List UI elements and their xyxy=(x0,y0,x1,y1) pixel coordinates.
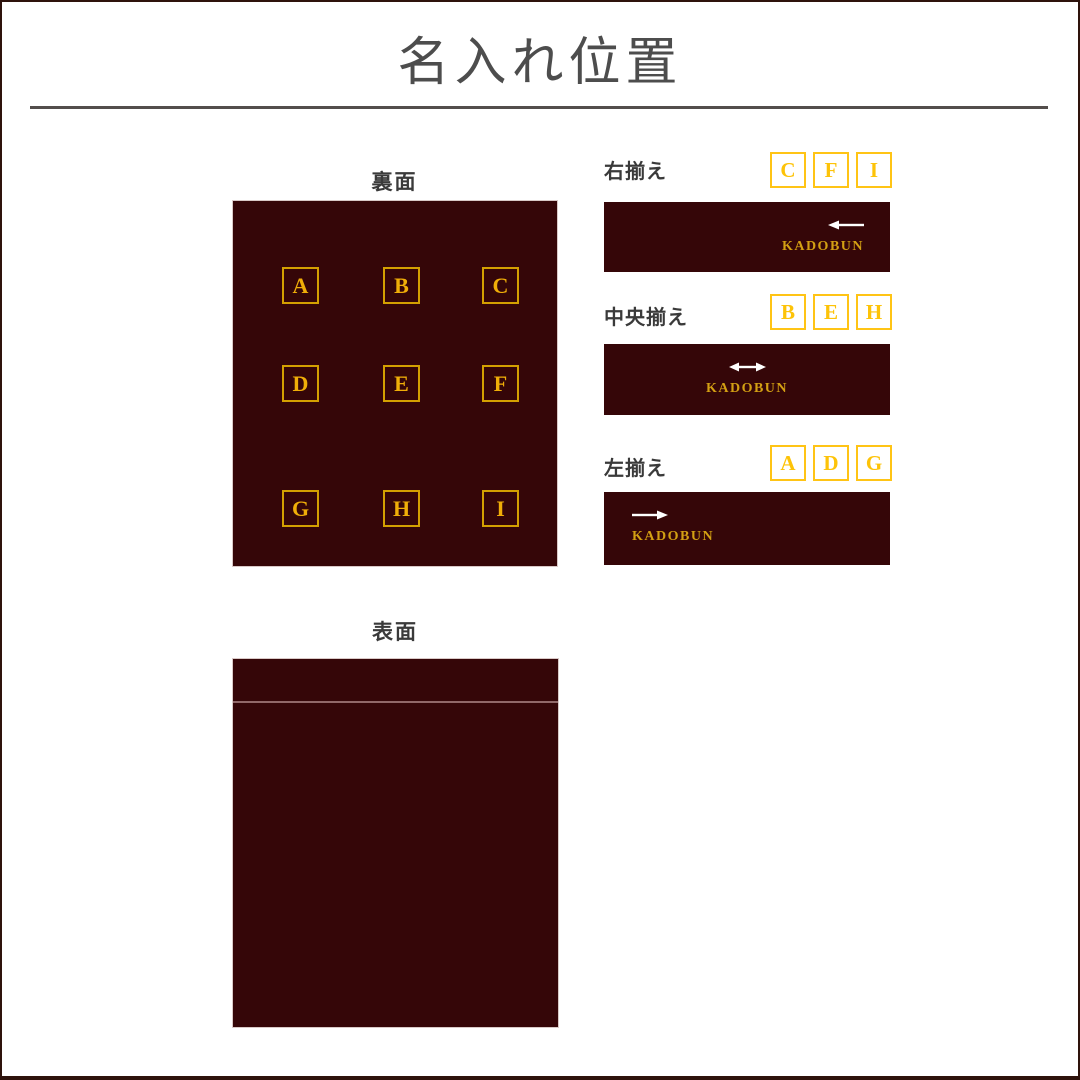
alignment-label-center: 中央揃え xyxy=(604,301,688,330)
position-box-b: B xyxy=(383,267,420,304)
position-letter: D xyxy=(293,371,309,397)
double-arrow-icon xyxy=(729,361,766,373)
position-box-f: F xyxy=(482,365,519,402)
badge-letter: H xyxy=(866,300,882,325)
position-letter: B xyxy=(394,273,409,299)
badge-letter: D xyxy=(823,451,838,476)
alignment-label-left: 左揃え xyxy=(604,452,667,481)
front-side-panel xyxy=(232,658,559,1028)
front-side-label: 表面 xyxy=(232,616,558,646)
back-side-label: 裏面 xyxy=(232,166,557,196)
sample-banner-right-align: KADOBUN xyxy=(604,202,890,272)
position-letter: C xyxy=(493,273,509,299)
letter-badge: A xyxy=(770,445,806,481)
badge-letter: A xyxy=(780,451,795,476)
letter-badge: G xyxy=(856,445,892,481)
badge-letter: G xyxy=(866,451,882,476)
position-letter: H xyxy=(393,496,410,522)
page-title: 名入れ位置 xyxy=(2,20,1078,95)
letter-badge: D xyxy=(813,445,849,481)
badge-letter: E xyxy=(824,300,838,325)
position-box-d: D xyxy=(282,365,319,402)
position-letter: E xyxy=(394,371,409,397)
position-box-e: E xyxy=(383,365,420,402)
brand-text: KADOBUN xyxy=(782,239,864,255)
left-arrow-icon xyxy=(828,219,864,231)
position-letter: A xyxy=(293,273,309,299)
brand-text: KADOBUN xyxy=(706,381,788,397)
position-letter: G xyxy=(292,496,309,522)
position-box-h: H xyxy=(383,490,420,527)
letter-badge: B xyxy=(770,294,806,330)
right-arrow-icon xyxy=(632,509,668,521)
letter-badges-center: B E H xyxy=(770,294,892,330)
position-box-a: A xyxy=(282,267,319,304)
letter-badges-left: A D G xyxy=(770,445,892,481)
badge-letter: B xyxy=(781,300,795,325)
letter-badge: F xyxy=(813,152,849,188)
title-divider xyxy=(30,106,1048,109)
position-box-c: C xyxy=(482,267,519,304)
letter-badge: E xyxy=(813,294,849,330)
position-letter: I xyxy=(496,496,505,522)
brand-text: KADOBUN xyxy=(632,529,714,545)
letter-badge: H xyxy=(856,294,892,330)
position-box-g: G xyxy=(282,490,319,527)
badge-letter: C xyxy=(780,158,795,183)
flap-crease-line xyxy=(233,701,558,703)
engraving-position-guide: 名入れ位置 裏面 A B C D E F G H I 右揃え C F I KAD… xyxy=(0,0,1080,1080)
position-box-i: I xyxy=(482,490,519,527)
alignment-label-right: 右揃え xyxy=(604,155,667,184)
sample-banner-left-align: KADOBUN xyxy=(604,492,890,565)
letter-badge: I xyxy=(856,152,892,188)
badge-letter: F xyxy=(825,158,838,183)
letter-badges-right: C F I xyxy=(770,152,892,188)
back-side-panel: A B C D E F G H I xyxy=(232,200,558,567)
letter-badge: C xyxy=(770,152,806,188)
badge-letter: I xyxy=(870,158,878,183)
position-letter: F xyxy=(494,371,507,397)
sample-banner-center-align: KADOBUN xyxy=(604,344,890,415)
